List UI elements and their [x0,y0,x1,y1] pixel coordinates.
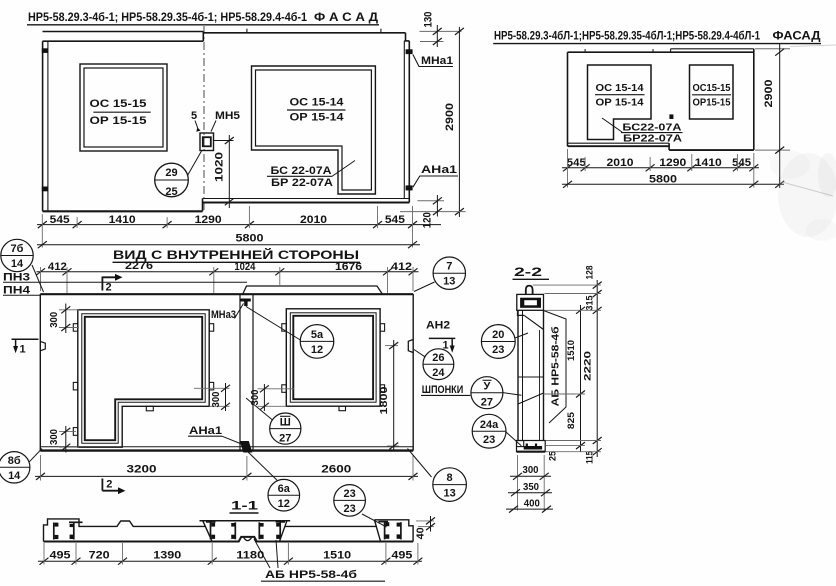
svg-text:825: 825 [566,411,577,429]
svg-text:1-1: 1-1 [231,499,259,513]
svg-text:ОС 15-14: ОС 15-14 [290,97,345,109]
svg-text:545: 545 [567,157,586,169]
svg-text:300: 300 [48,312,60,328]
svg-text:545: 545 [385,214,405,226]
svg-text:128: 128 [585,266,596,280]
svg-text:300: 300 [523,464,539,476]
svg-text:25: 25 [165,186,177,198]
svg-text:315: 315 [585,295,596,311]
svg-text:1020: 1020 [214,152,226,182]
svg-text:20: 20 [492,329,504,341]
svg-text:2010: 2010 [300,214,327,226]
svg-text:495: 495 [50,550,71,562]
svg-text:120: 120 [422,212,434,228]
svg-text:АНа1: АНа1 [189,425,222,437]
svg-text:130: 130 [423,12,435,28]
svg-text:2900: 2900 [763,80,775,108]
svg-text:400: 400 [524,498,540,510]
svg-text:720: 720 [89,550,110,562]
svg-text:НР5-58.29.3-4б-1; НР5-58.29.35: НР5-58.29.3-4б-1; НР5-58.29.35-4б-1; НР5… [28,10,307,24]
svg-text:5800: 5800 [649,174,677,186]
svg-text:24: 24 [432,367,445,379]
svg-text:ШПОНКИ: ШПОНКИ [422,384,464,396]
svg-text:У: У [483,381,490,393]
svg-text:2: 2 [106,478,112,490]
svg-text:545: 545 [732,157,751,169]
svg-text:АБ НР5-58-4б: АБ НР5-58-4б [265,569,357,581]
svg-text:300: 300 [210,391,222,407]
svg-text:27: 27 [481,397,493,409]
svg-text:6а: 6а [278,483,291,495]
svg-text:Ш: Ш [280,417,291,429]
svg-text:Ф А С А Д: Ф А С А Д [314,10,378,24]
svg-text:НР5-58.29.3-4бЛ-1;НР5-58.29.35: НР5-58.29.3-4бЛ-1;НР5-58.29.35-4бЛ-1;НР5… [494,29,760,43]
svg-text:ФАСАД: ФАСАД [773,29,821,43]
svg-text:ОР 15-14: ОР 15-14 [596,96,644,108]
svg-text:2276: 2276 [125,260,153,272]
svg-text:2010: 2010 [607,157,634,169]
svg-text:412: 412 [391,261,412,273]
svg-text:545: 545 [50,214,70,226]
svg-text:5800: 5800 [236,233,264,245]
svg-text:1290: 1290 [195,214,222,226]
svg-text:23: 23 [492,344,504,356]
svg-text:23: 23 [483,434,495,446]
svg-text:300: 300 [249,389,261,405]
svg-text:412: 412 [48,261,67,273]
svg-text:1800: 1800 [378,386,390,414]
svg-text:1510: 1510 [323,550,351,562]
svg-text:БС 22-07А: БС 22-07А [271,165,332,177]
svg-text:ОР 15-15: ОР 15-15 [90,115,147,127]
svg-text:13: 13 [443,488,455,500]
svg-text:1510: 1510 [566,340,577,361]
svg-text:ОС 15-14: ОС 15-14 [596,82,644,94]
svg-text:23: 23 [343,488,355,500]
svg-text:12: 12 [311,344,323,356]
svg-text:АНа1: АНа1 [421,164,457,176]
svg-text:40: 40 [415,527,427,539]
svg-text:БР22-07А: БР22-07А [623,133,682,145]
svg-text:БР 22-07А: БР 22-07А [271,177,333,189]
svg-text:5а: 5а [311,329,324,341]
svg-text:27: 27 [279,433,291,445]
svg-text:1410: 1410 [695,157,722,169]
svg-text:29: 29 [165,167,177,179]
svg-text:495: 495 [391,550,412,562]
svg-text:2600: 2600 [321,463,351,475]
svg-text:ОР 15-14: ОР 15-14 [290,112,345,124]
svg-text:1: 1 [20,344,26,356]
svg-text:2900: 2900 [444,103,456,131]
svg-text:7: 7 [446,261,452,273]
svg-text:1410: 1410 [109,214,136,226]
svg-text:ОС15-15: ОС15-15 [693,82,731,94]
svg-text:8: 8 [447,472,453,484]
svg-text:26: 26 [432,352,444,364]
svg-text:1180: 1180 [236,550,264,562]
svg-text:АН2: АН2 [426,319,450,331]
svg-text:14: 14 [8,470,21,482]
svg-text:МНа1: МНа1 [421,55,453,67]
svg-text:13: 13 [443,276,455,288]
svg-text:МНа3: МНа3 [211,309,236,321]
svg-text:1390: 1390 [153,550,181,562]
svg-text:2: 2 [106,282,112,294]
svg-text:1024: 1024 [234,261,256,273]
svg-text:3200: 3200 [127,463,157,475]
svg-text:2220: 2220 [583,351,594,381]
svg-text:1676: 1676 [335,261,362,273]
svg-text:МН5: МН5 [215,110,240,122]
svg-text:ПН4: ПН4 [3,285,31,297]
svg-text:ОР15-15: ОР15-15 [693,96,731,108]
svg-text:24а: 24а [480,419,499,431]
svg-text:ОС 15-15: ОС 15-15 [90,98,147,110]
svg-text:ПН3: ПН3 [3,272,30,284]
svg-text:115: 115 [585,450,596,464]
svg-text:7б: 7б [11,243,24,255]
svg-text:2-2: 2-2 [514,265,543,279]
svg-text:350: 350 [523,481,539,493]
svg-text:300: 300 [48,429,60,445]
svg-text:23: 23 [343,503,355,515]
svg-text:14: 14 [11,258,24,270]
svg-text:1290: 1290 [659,157,686,169]
svg-text:8б: 8б [8,455,21,467]
svg-text:5: 5 [191,110,197,122]
svg-text:12: 12 [278,498,290,510]
